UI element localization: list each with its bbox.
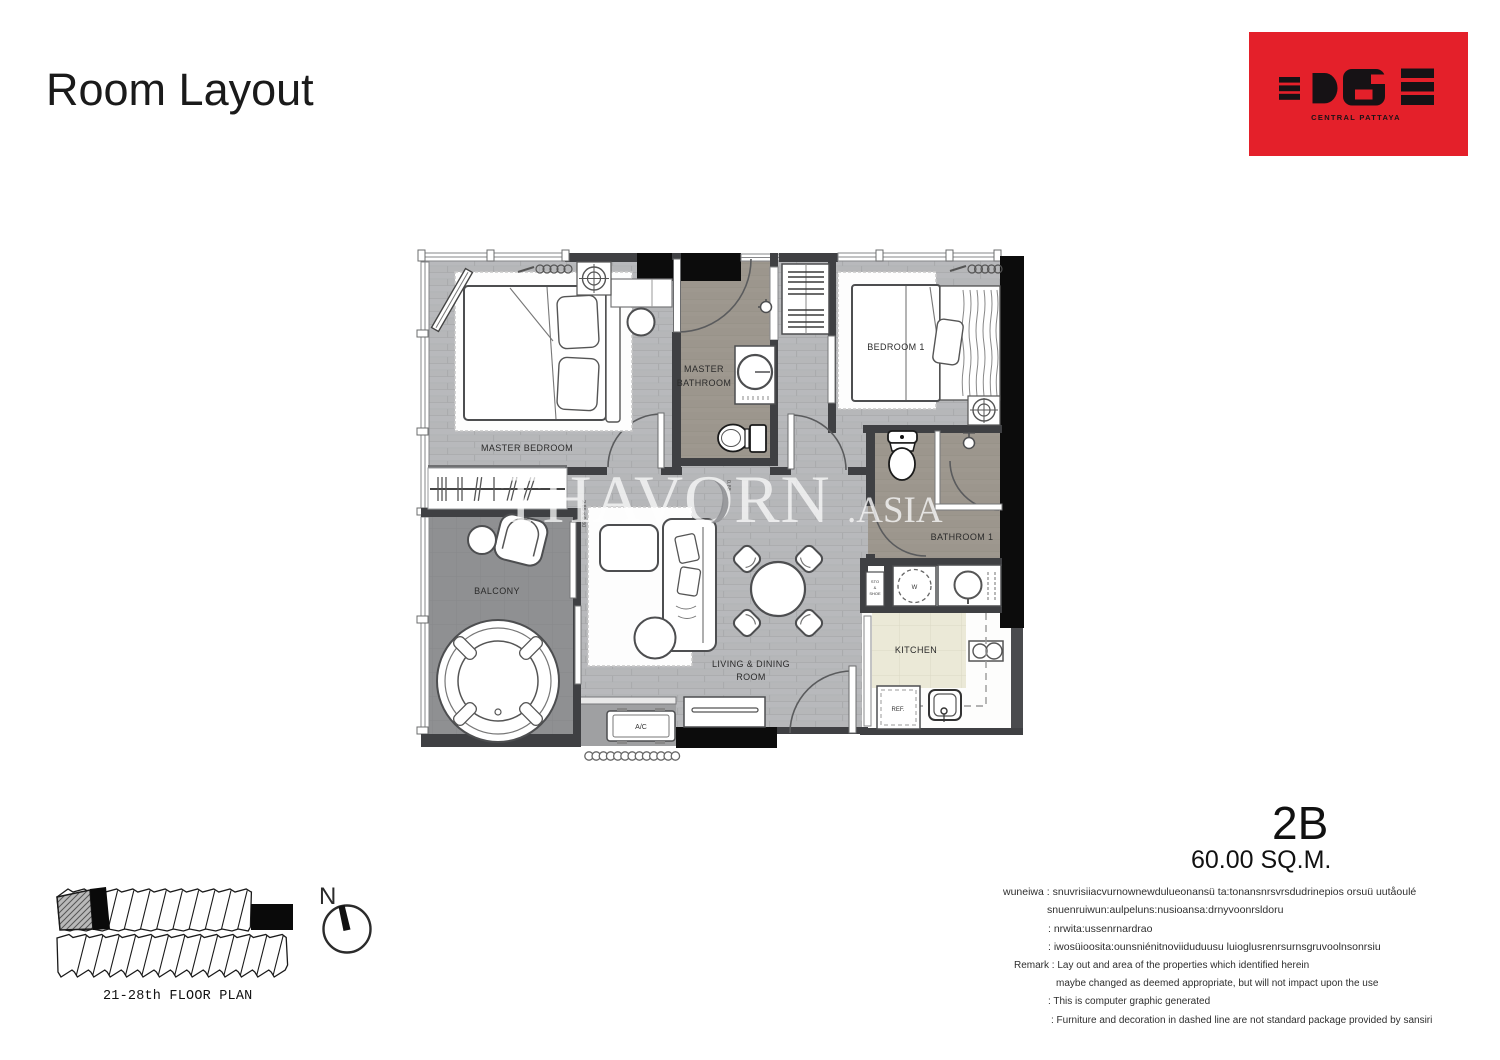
svg-text:BALCONY: BALCONY <box>474 586 520 596</box>
svg-text:ROOM: ROOM <box>736 672 766 682</box>
svg-text:STO: STO <box>871 579 879 584</box>
svg-text:&: & <box>874 585 877 590</box>
svg-text:MASTER BEDROOM: MASTER BEDROOM <box>481 443 573 453</box>
svg-text:SHOE: SHOE <box>869 591 881 596</box>
svg-text:THAVORN: THAVORN <box>500 461 831 537</box>
svg-text:.ASIA: .ASIA <box>847 490 943 531</box>
svg-text:MASTER: MASTER <box>684 364 724 374</box>
svg-text:REF.: REF. <box>891 707 904 713</box>
svg-text:KITCHEN: KITCHEN <box>895 645 937 655</box>
svg-text:LIVING & DINING: LIVING & DINING <box>712 659 790 669</box>
svg-text:W: W <box>912 585 918 591</box>
svg-text:21-28th FLOOR PLAN: 21-28th FLOOR PLAN <box>103 989 252 1004</box>
svg-text:N: N <box>319 883 336 910</box>
svg-text:A/C: A/C <box>635 724 647 731</box>
svg-text:BEDROOM 1: BEDROOM 1 <box>867 342 925 352</box>
svg-text:BATHROOM 1: BATHROOM 1 <box>931 532 994 542</box>
svg-text:BATHROOM: BATHROOM <box>677 378 732 388</box>
